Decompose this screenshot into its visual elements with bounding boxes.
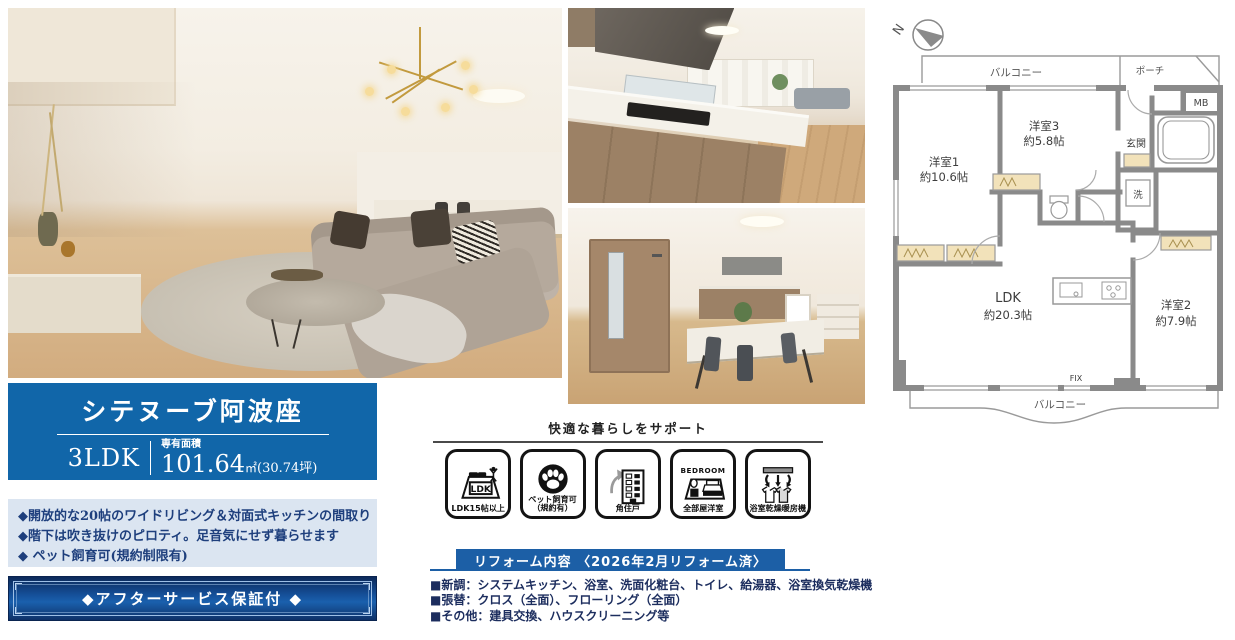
cushion-shape <box>411 208 453 248</box>
bedroom-bed-icon: BEDROOM <box>680 465 726 505</box>
support-heading: 快適な暮らしをサポート <box>433 418 823 437</box>
chandelier-bulb <box>461 61 470 70</box>
kitchen-counter <box>1053 278 1131 304</box>
dining-chair-shape <box>737 345 753 381</box>
vase-shape <box>38 212 58 246</box>
plan-type: 3LDK <box>68 444 140 472</box>
floor-plan-svg: N バルコニー ポーチ <box>888 8 1235 432</box>
living-room-photo <box>8 8 562 378</box>
chandelier-stem <box>419 27 421 79</box>
listing-flyer: N バルコニー ポーチ <box>0 0 1235 640</box>
svg-text:玄関: 玄関 <box>1126 137 1146 150</box>
wood-door-shape <box>589 239 670 372</box>
kitchen-photo <box>568 8 865 203</box>
svg-text:LDK: LDK <box>471 485 492 495</box>
chandelier-bulb <box>441 103 450 112</box>
renovation-section: リフォーム内容 〈2026年2月リフォーム済〉 ■新調：システムキッチン、浴室、… <box>430 549 938 624</box>
balcony-bottom-label: バルコニー <box>1034 399 1086 411</box>
chandelier-arm <box>385 60 457 99</box>
dining-chair-shape <box>703 337 721 372</box>
decor-vase-shape <box>61 241 75 257</box>
chandelier-bulb <box>365 87 374 96</box>
renovation-heading-banner: リフォーム内容 〈2026年2月リフォーム済〉 <box>456 549 785 571</box>
title-divider-rule <box>57 434 329 435</box>
badge-all-western-rooms: BEDROOM 全部屋洋室 <box>670 449 736 519</box>
chandelier-bulb <box>401 107 410 116</box>
svg-text:LDK: LDK <box>995 291 1021 306</box>
pet-paw-icon <box>530 462 576 496</box>
door-handle-shape <box>652 254 662 257</box>
porch-label: ポーチ <box>1136 66 1165 77</box>
plant-shape <box>772 74 788 90</box>
svg-text:N: N <box>890 22 908 39</box>
feature-points-panel: ◆開放的な20帖のワイドリビング＆対面式キッチンの間取り ◆階下は吹き抜けのピロ… <box>8 499 377 567</box>
chandelier-bulb <box>469 85 478 94</box>
badge-label: 角住戸 <box>616 505 640 513</box>
badge-corner-unit: 角住戸 <box>595 449 661 519</box>
floor-plan: N バルコニー ポーチ <box>888 8 1235 432</box>
area-label: 専有面積 <box>161 440 317 450</box>
bathtub <box>1158 117 1214 163</box>
feature-line: ◆開放的な20帖のワイドリビング＆対面式キッチンの間取り <box>18 507 377 527</box>
area-unit: ㎡ <box>245 461 257 475</box>
balcony-top-label: バルコニー <box>990 67 1042 79</box>
ceiling-light-shape <box>740 216 784 227</box>
compass-north-indicator: N <box>890 20 944 50</box>
after-service-label: ◆アフターサービス保証付 ◆ <box>9 577 376 620</box>
table-tray-shape <box>271 269 323 281</box>
bath-dryer-icon <box>755 465 801 505</box>
svg-text:約20.3帖: 約20.3帖 <box>984 308 1033 322</box>
badge-label: ペット飼育可 （規約有） <box>529 497 577 514</box>
badge-ldk-over-15: LDK LDK15帖以上 <box>445 449 511 519</box>
ceiling-light-shape <box>705 26 739 35</box>
svg-text:洋室1: 洋室1 <box>929 155 959 169</box>
renovation-banner-row: リフォーム内容 〈2026年2月リフォーム済〉 <box>430 549 810 571</box>
renovation-item: ■新調：システムキッチン、浴室、洗面化粧台、トイレ、給湯器、浴室換気乾燥機 <box>430 578 938 593</box>
range-hood-shape <box>722 257 781 275</box>
cushion-shape <box>329 210 370 250</box>
svg-text:約5.8帖: 約5.8帖 <box>1023 134 1064 148</box>
dining-chair-shape <box>780 333 797 364</box>
tv-board-shape <box>8 274 141 333</box>
comfort-support-section: 快適な暮らしをサポート LDK LDK15帖以上 <box>433 418 823 519</box>
renovation-item: ■その他：建具交換、ハウスクリーニング等 <box>430 609 938 624</box>
ldk-room-icon: LDK <box>455 465 501 505</box>
svg-text:FIX: FIX <box>1070 374 1083 383</box>
badge-label: LDK15帖以上 <box>451 505 505 513</box>
badge-pets-allowed: ペット飼育可 （規約有） <box>520 449 586 519</box>
svg-text:洋室3: 洋室3 <box>1029 119 1059 133</box>
wall-shadow-shape <box>8 82 196 237</box>
feature-badge-row: LDK LDK15帖以上 ペット飼育可 （規約有） <box>433 449 823 519</box>
renovation-items: ■新調：システムキッチン、浴室、洗面化粧台、トイレ、給湯器、浴室換気乾燥機 ■張… <box>430 578 938 624</box>
feature-line: ◆階下は吹き抜けのピロティ。足音気にせず暮らせます <box>18 527 377 547</box>
mb-label: MB <box>1194 98 1209 109</box>
plant-shape <box>734 302 752 322</box>
svg-text:約10.6帖: 約10.6帖 <box>920 170 969 184</box>
shelf-shape <box>817 294 859 339</box>
after-service-guarantee-badge: ◆アフターサービス保証付 ◆ <box>8 576 377 621</box>
property-name: シテヌーブ阿波座 <box>8 383 377 428</box>
toilet <box>1050 196 1068 219</box>
laundry-label: 洗 <box>1133 189 1143 201</box>
renovation-item: ■張替：クロス（全面）、フローリング（全面） <box>430 593 938 608</box>
property-title-banner: シテヌーブ阿波座 3LDK 専有面積 101.64㎡(30.74坪) <box>8 383 377 480</box>
badge-label: 全部屋洋室 <box>683 505 723 513</box>
vertical-divider <box>150 441 151 475</box>
dining-kitchen-photo <box>568 208 865 404</box>
svg-text:洋室2: 洋室2 <box>1161 298 1191 312</box>
area-value: 101.64 <box>161 450 245 478</box>
badge-label: 浴室乾燥暖房機 <box>750 505 807 513</box>
background-sofa-shape <box>794 88 850 109</box>
area-tsubo: (30.74坪) <box>257 461 317 476</box>
feature-line: ◆ ペット飼育可(規約制限有) <box>18 547 377 567</box>
coffee-table-shape <box>246 278 385 326</box>
badge-bathroom-dryer: 浴室乾燥暖房機 <box>745 449 811 519</box>
support-heading-rule <box>433 441 823 443</box>
svg-text:約7.9帖: 約7.9帖 <box>1155 314 1196 328</box>
chandelier-bulb <box>387 65 396 74</box>
door-glass-slit-shape <box>608 252 624 339</box>
svg-text:BEDROOM: BEDROOM <box>681 466 726 475</box>
corner-building-icon <box>605 465 651 505</box>
chandelier-shape <box>357 27 487 142</box>
